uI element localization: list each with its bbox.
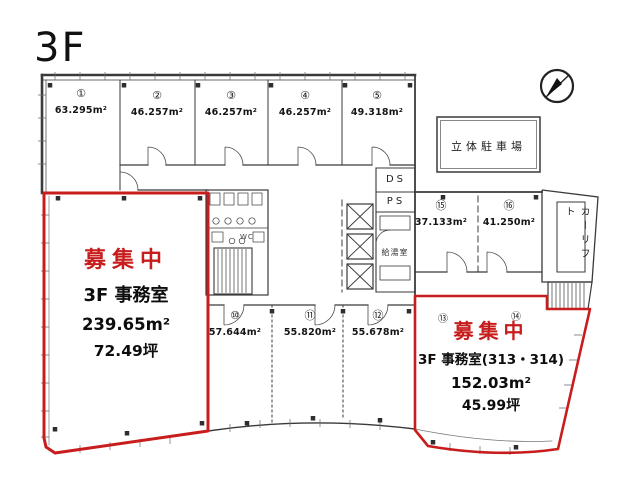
kitchen-label: 給湯室: [374, 247, 416, 258]
elevator-shafts: [347, 204, 373, 289]
car-lift-label: カーリフト: [561, 206, 591, 272]
vacancy-left-block: 募集中 3F 事務室 239.65m² 72.49坪: [44, 246, 208, 364]
vacancy-right-block: 募集中 3F 事務室(313・314) 152.03m² 45.99坪: [406, 318, 576, 418]
vacancy-name: 3F 事務室(313・314): [406, 348, 576, 372]
floor-plan-page: 3F ① 63.295m² ② 46.257m² ③ 46.257m² ④ 46…: [0, 0, 640, 480]
core-block: [206, 190, 268, 295]
vacancy-tsubo: 45.99坪: [406, 395, 576, 418]
room-number: ⑯: [469, 200, 549, 212]
vacancy-area: 239.65m²: [44, 311, 208, 338]
wc-label: WC: [240, 233, 254, 241]
vacancy-status: 募集中: [44, 246, 208, 276]
vacancy-name: 3F 事務室: [44, 280, 208, 311]
floor-title: 3F: [34, 26, 86, 70]
north-arrow-icon: [541, 70, 573, 102]
room-number: ⑤: [332, 90, 422, 102]
vacancy-status: 募集中: [406, 318, 576, 344]
vacancy-tsubo: 72.49坪: [44, 338, 208, 364]
room-area: 49.318m²: [332, 107, 422, 118]
room-label-5: ⑤ 49.318m²: [332, 90, 422, 118]
ps-label: PS: [378, 196, 414, 207]
room-area: 41.250m²: [469, 217, 549, 228]
ds-label: DS: [378, 174, 414, 185]
stairs-southeast: [548, 282, 592, 309]
vacancy-area: 152.03m²: [406, 372, 576, 395]
parking-label: 立体駐車場: [437, 138, 540, 154]
room-label-16: ⑯ 41.250m²: [469, 200, 549, 228]
